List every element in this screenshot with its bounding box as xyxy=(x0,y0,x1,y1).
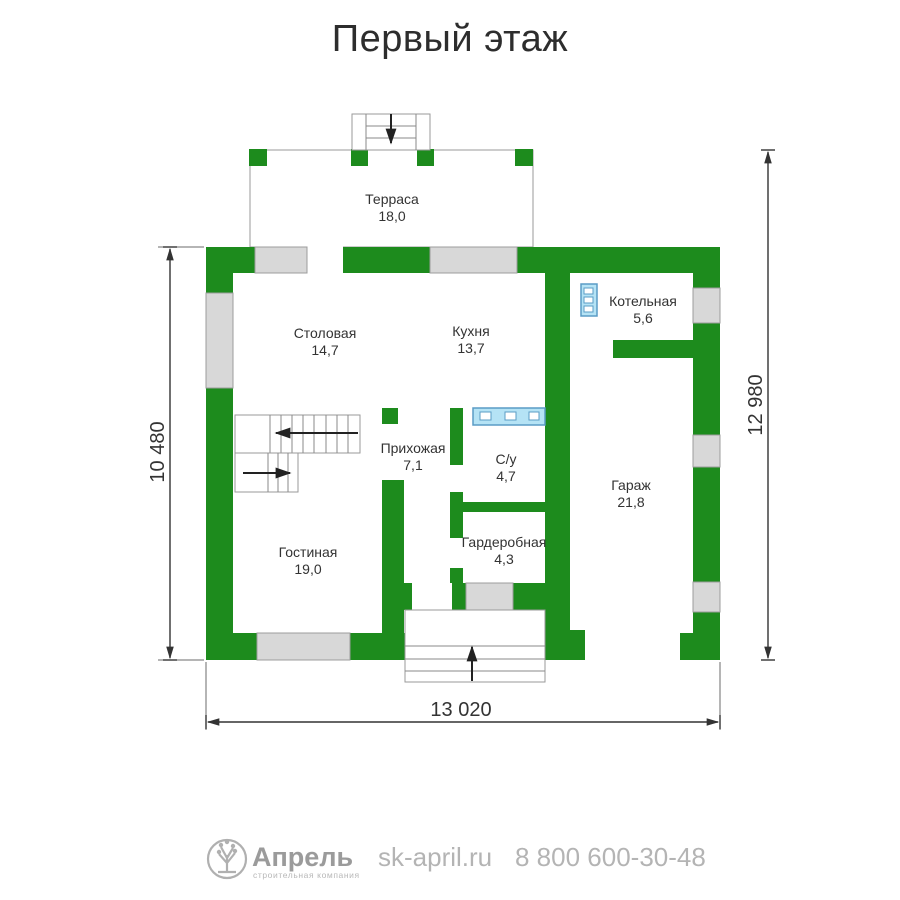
room-name: Гостиная xyxy=(279,544,338,560)
room-name: Гардеробная xyxy=(462,534,547,550)
floorplan-drawing: Терраса 18,0 Столовая 14,7 Кухня 13,7 Ко… xyxy=(0,0,900,900)
interior-staircase xyxy=(235,415,360,492)
room-name: С/у xyxy=(496,451,517,467)
room-name: Гараж xyxy=(611,477,651,493)
window-bottom-living xyxy=(257,633,350,660)
entry-porch xyxy=(405,610,545,682)
room-area: 21,8 xyxy=(617,494,644,510)
room-name: Кухня xyxy=(452,323,489,339)
window-top-1 xyxy=(255,247,307,273)
room-label-garage: Гараж 21,8 xyxy=(611,477,651,510)
wall-wc-left-b xyxy=(450,492,463,538)
room-label-kitchen: Кухня 13,7 xyxy=(452,323,489,356)
room-name: Котельная xyxy=(609,293,677,309)
logo-tree-icon xyxy=(208,840,246,878)
brand-name: Апрель xyxy=(252,842,353,872)
wall-column xyxy=(382,408,398,424)
terrace-post xyxy=(249,149,267,166)
room-area: 4,7 xyxy=(496,468,516,484)
room-area: 19,0 xyxy=(294,561,321,577)
window-right-garage-1 xyxy=(693,435,720,467)
terrace-stairs xyxy=(352,114,430,150)
room-area: 18,0 xyxy=(378,208,405,224)
room-area: 5,6 xyxy=(633,310,653,326)
room-area: 13,7 xyxy=(457,340,484,356)
window-bottom-entry xyxy=(466,583,513,610)
dimension-left-label: 10 480 xyxy=(147,421,169,482)
floorplan-page: Первый этаж xyxy=(0,0,900,900)
website-link[interactable]: sk-april.ru xyxy=(378,842,492,872)
terrace-post xyxy=(417,149,434,166)
dimension-bottom-label: 13 020 xyxy=(430,699,491,721)
terrace-post xyxy=(515,149,533,166)
room-area: 4,3 xyxy=(494,551,514,567)
dimension-left: 10 480 xyxy=(147,247,204,660)
room-label-boiler: Котельная 5,6 xyxy=(609,293,677,326)
window-right-garage-2 xyxy=(693,582,720,612)
wall-wc-wardrobe-divider xyxy=(450,502,545,512)
room-name: Прихожая xyxy=(381,440,446,456)
boiler-fixture xyxy=(581,284,597,316)
room-name: Столовая xyxy=(294,325,357,341)
brand-tagline: строительная компания xyxy=(253,870,360,880)
room-label-living: Гостиная 19,0 xyxy=(279,544,338,577)
wall-wc-left-c xyxy=(450,568,463,583)
wall-living-hall xyxy=(382,480,404,660)
phone-number: 8 800 600-30-48 xyxy=(515,842,706,872)
dimension-right-label: 12 980 xyxy=(745,374,767,435)
terrace-post xyxy=(351,149,368,166)
window-left xyxy=(206,293,233,388)
wall-wc-left-a xyxy=(450,408,463,465)
footer: Апрель строительная компания sk-april.ru… xyxy=(208,840,706,880)
wall-bottom-entry-stub xyxy=(452,583,466,610)
window-top-2 xyxy=(430,247,517,273)
room-name: Терраса xyxy=(365,191,419,207)
wall-garage-door-right xyxy=(680,633,720,660)
wall-boiler-bottom xyxy=(613,340,693,358)
terrace-door-opening xyxy=(307,246,343,274)
room-label-hall: Прихожая 7,1 xyxy=(381,440,446,473)
dimension-right: 12 980 xyxy=(745,150,775,660)
room-area: 14,7 xyxy=(311,342,338,358)
room-label-dining: Столовая 14,7 xyxy=(294,325,357,358)
window-right-boiler xyxy=(693,288,720,323)
room-label-wardrobe: Гардеробная 4,3 xyxy=(462,534,547,567)
wc-vanity-fixture xyxy=(473,408,545,425)
wall-garage-left xyxy=(545,247,570,660)
room-label-wc: С/у 4,7 xyxy=(496,451,517,484)
room-area: 7,1 xyxy=(403,457,423,473)
